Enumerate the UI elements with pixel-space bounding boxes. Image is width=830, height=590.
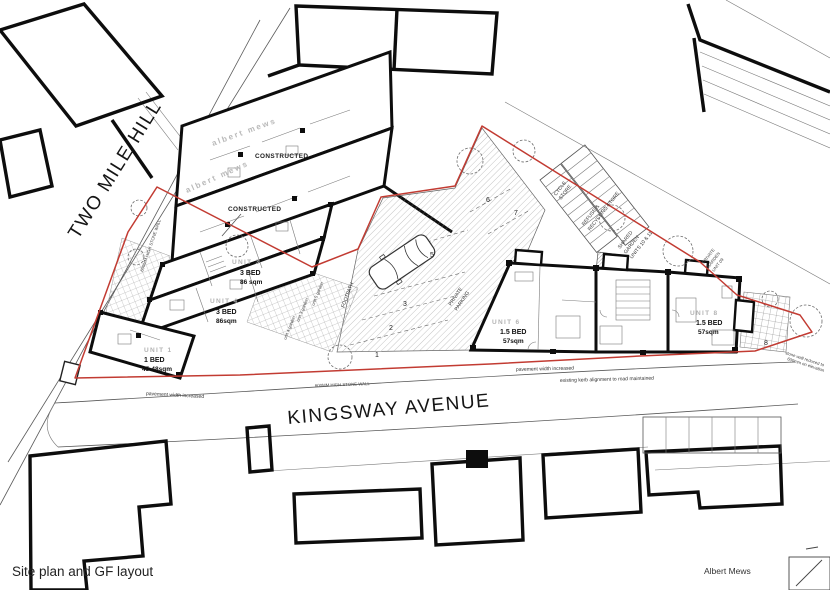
garden-8: 8 [764,340,768,347]
unit8-area: 57sqm [698,329,719,336]
unit4-area: 86sqm [216,318,237,325]
unit3-id: UNIT 3 [232,259,260,266]
site-plan-sheet: TWO MILE HILL KINGSWAY AVENUE albert mew… [0,0,830,590]
unit1-area: 45-48sqm [142,366,172,373]
unit6-id: UNIT 6 [492,319,520,326]
pavement-note-right: pavement width increased [516,365,574,373]
context-buildings-top-right [688,4,830,148]
unit8-type: 1.5 BED [696,320,722,327]
bay-3: 3 [403,301,407,308]
unit6-type: 1.5 BED [500,329,526,336]
unit1-id: UNIT 1 [144,347,172,354]
unit6-area: 57sqm [503,338,524,345]
stone-wall-note-bottom: 600MM HIGH STONE WALL [315,381,371,388]
unit3-type: 3 BED [240,270,261,277]
unit8-id: UNIT 8 [690,310,718,317]
title-block-corner [789,547,830,590]
context-buildings-top-left [0,4,162,197]
bay-7: 7 [514,210,518,217]
unit1-type: 1 BED [144,357,165,364]
kingsway-avenue-label: KINGSWAY AVENUE [287,390,491,429]
constructed-label-1: CONSTRUCTED [255,153,308,160]
bay-6: 6 [486,197,490,204]
pavement-note-left: pavement width increased [146,391,205,400]
project-name: Albert Mews [704,566,751,576]
unit4-label: UNIT 4 3 BED 86sqm [210,298,238,325]
unit3-area: 86 sqm [240,279,263,286]
unit4-id: UNIT 4 [210,298,238,305]
site-plan-drawing: TWO MILE HILL KINGSWAY AVENUE albert mew… [0,0,830,590]
bay-1: 1 [375,352,379,359]
bay-2: 2 [389,325,393,332]
drawing-caption: Site plan and GF layout [12,564,153,579]
constructed-label-2: CONSTRUCTED [228,206,281,213]
two-mile-hill-label: TWO MILE HILL [64,97,166,243]
unit4-type: 3 BED [216,309,237,316]
kerb-note: existing kerb alignment to road maintain… [560,376,654,384]
bay-5: 5 [430,252,434,259]
